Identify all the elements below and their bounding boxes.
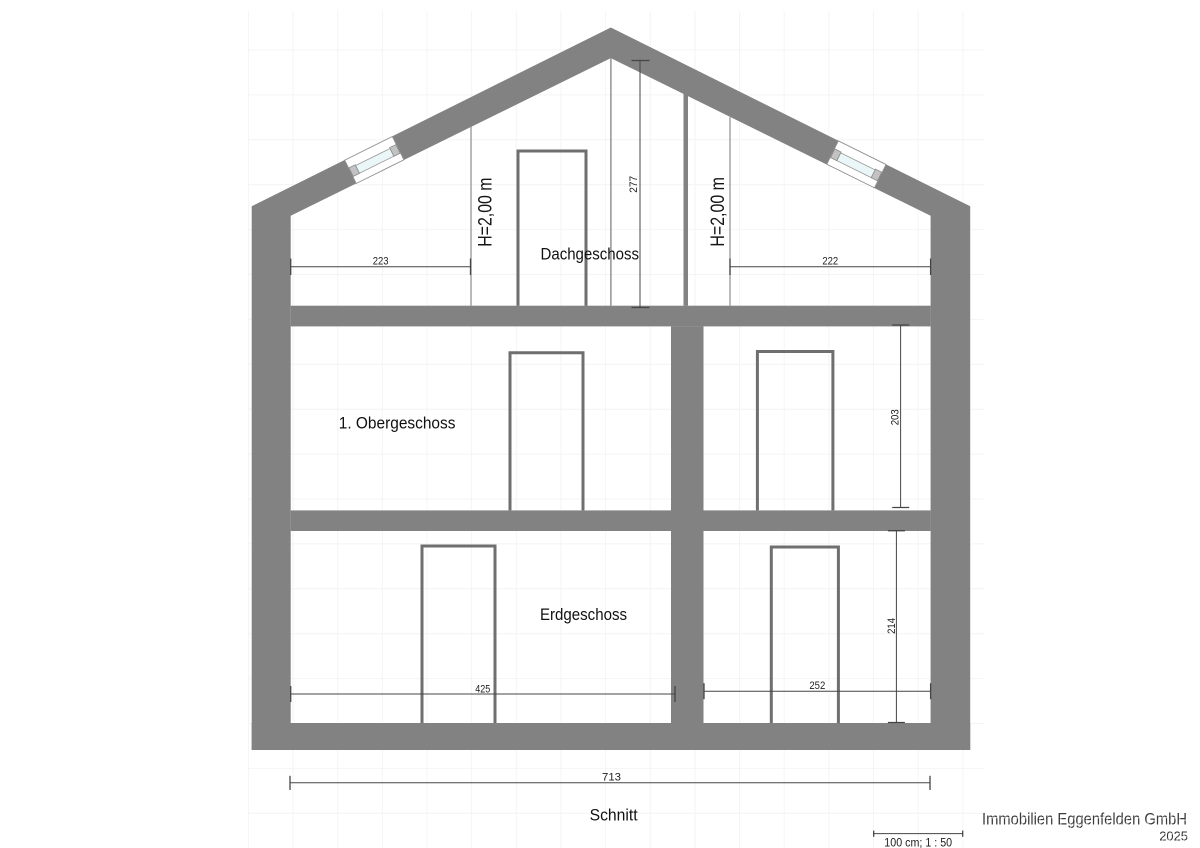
svg-text:713: 713 — [602, 771, 621, 783]
svg-text:Dachgeschoss: Dachgeschoss — [541, 245, 640, 264]
svg-text:H=2,00 m: H=2,00 m — [708, 177, 729, 247]
svg-text:214: 214 — [886, 618, 898, 634]
svg-text:Erdgeschoss: Erdgeschoss — [540, 605, 627, 624]
svg-text:H=2,00 m: H=2,00 m — [475, 178, 496, 247]
svg-text:223: 223 — [373, 255, 389, 267]
svg-text:425: 425 — [475, 683, 490, 695]
svg-text:277: 277 — [628, 176, 640, 193]
svg-text:222: 222 — [822, 255, 838, 267]
svg-text:Immobilien Eggenfelden GmbH: Immobilien Eggenfelden GmbH — [983, 811, 1188, 830]
svg-text:Schnitt: Schnitt — [590, 806, 638, 825]
svg-text:252: 252 — [809, 680, 825, 692]
svg-text:1. Obergeschoss: 1. Obergeschoss — [339, 414, 456, 433]
svg-text:100 cm; 1 : 50: 100 cm; 1 : 50 — [884, 835, 952, 848]
svg-text:2025: 2025 — [1161, 830, 1190, 845]
svg-text:203: 203 — [889, 409, 901, 425]
